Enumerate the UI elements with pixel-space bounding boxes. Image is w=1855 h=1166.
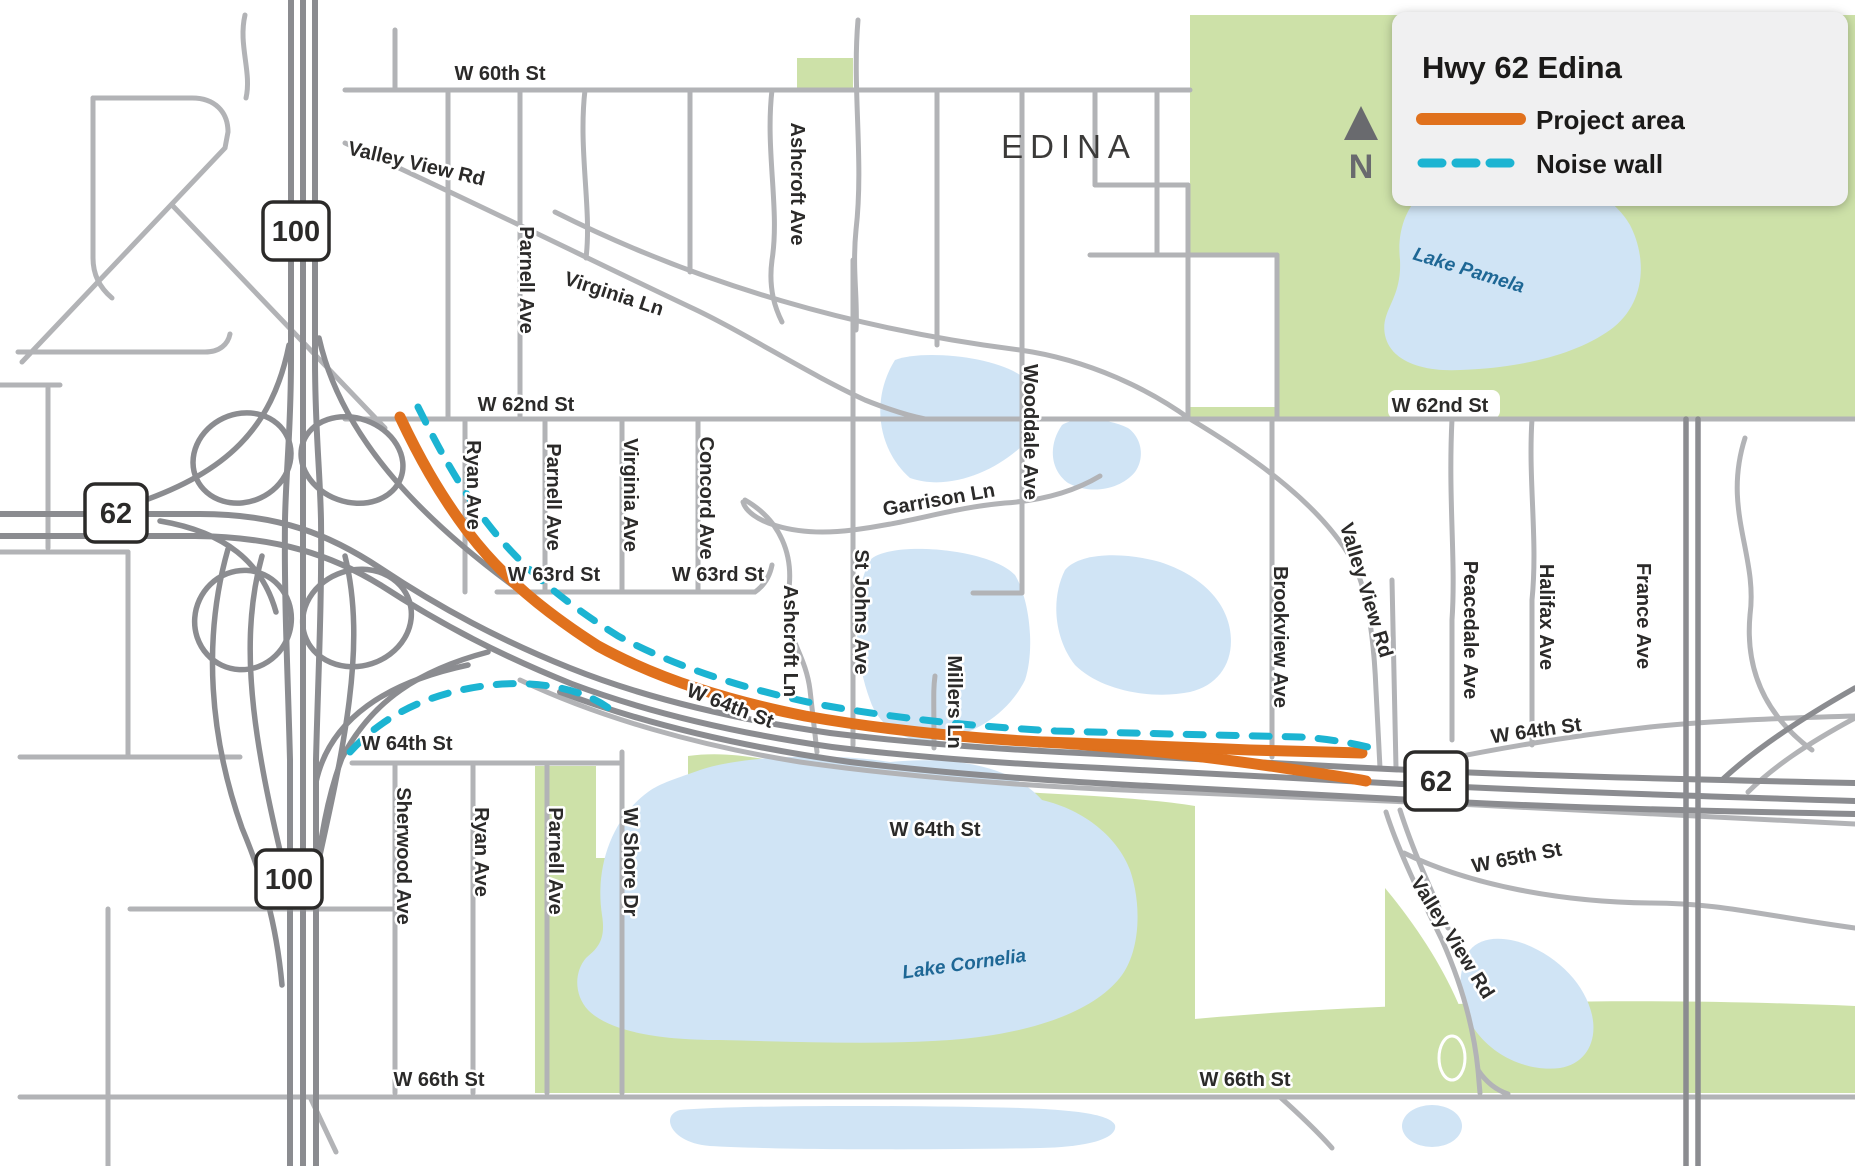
street-label-ryan-bot: Ryan Ave — [470, 807, 492, 897]
north-arrow-label: N — [1349, 148, 1374, 186]
virginia-ln-road — [583, 90, 588, 258]
local-road — [18, 334, 230, 352]
shield-100-south: 100 — [256, 850, 322, 908]
peacedale-ave-road — [1451, 419, 1453, 740]
park-patch-w60th — [797, 58, 853, 89]
street-label-w66th-l: W 66th St — [393, 1069, 484, 1091]
street-label-halifax: Halifax Ave — [1535, 564, 1557, 670]
street-label-parnell-bot: Parnell Ave — [544, 807, 566, 914]
shield-62-east-label: 62 — [1420, 766, 1452, 798]
shield-100-north: 100 — [263, 202, 329, 260]
street-label-brookview: Brookview Ave — [1269, 566, 1291, 708]
valley-view-rd-top — [345, 143, 925, 419]
street-label-wshore: W Shore Dr — [619, 808, 641, 917]
valley-view-rd-parallel — [1392, 580, 1396, 768]
street-label-w64th-green: W 64th St — [889, 819, 980, 841]
street-label-ryan-mid: Ryan Ave — [462, 440, 484, 530]
ashcroft-ave-road — [770, 90, 782, 322]
street-label-w62nd-r: W 62nd St — [1392, 395, 1489, 417]
shield-100-south-label: 100 — [265, 864, 313, 896]
street-label-virginia-ave: Virginia Ave — [619, 438, 641, 552]
street-label-france: France Ave — [1632, 563, 1654, 669]
street-label-millers: Millers Ln — [943, 655, 965, 748]
park-cutout-streets — [1190, 257, 1277, 407]
street-label-w62nd-l: W 62nd St — [478, 394, 575, 416]
pond-brookview — [1056, 555, 1231, 694]
street-label-ashcroft-ave: Ashcroft Ave — [786, 123, 808, 246]
shield-62-west-label: 62 — [100, 498, 132, 530]
street-label-parnell-mid: Parnell Ave — [542, 443, 564, 550]
map-canvas: W 60th StValley View RdParnell AveVirgin… — [0, 0, 1855, 1166]
street-label-concord: Concord Ave — [695, 437, 717, 560]
local-road — [1280, 1097, 1332, 1148]
legend-noise-wall-label: Noise wall — [1536, 149, 1663, 179]
street-label-wooddale: Wooddale Ave — [1019, 364, 1041, 500]
street-label-parnell-top: Parnell Ave — [515, 226, 537, 333]
street-label-w63rd-r: W 63rd St — [672, 564, 765, 586]
legend-project-area-label: Project area — [1536, 105, 1685, 135]
street-label-peacedale: Peacedale Ave — [1459, 561, 1481, 700]
legend: Hwy 62 Edina Project area Noise wall — [1392, 12, 1848, 206]
east-ramp-dark — [1722, 688, 1855, 780]
street-label-w60th: W 60th St — [454, 63, 545, 85]
highway-100-lane-w — [285, 0, 291, 1166]
street-label-vv-top: Valley View Rd — [346, 138, 487, 191]
legend-title: Hwy 62 Edina — [1422, 50, 1623, 85]
street-label-w66th-r: W 66th St — [1199, 1069, 1290, 1091]
east-curvy-road — [1737, 438, 1812, 750]
street-label-stjohns: St Johns Ave — [850, 549, 872, 674]
local-road — [243, 15, 248, 98]
street-label-virginia-ln: Virginia Ln — [561, 268, 666, 321]
pond-below-w66th — [670, 1106, 1115, 1149]
shield-62-west: 62 — [85, 484, 147, 542]
street-label-w63rd-l: W 63rd St — [508, 564, 601, 586]
street-label-ashcroft-ln: Ashcroft Ln — [779, 585, 801, 697]
shield-62-east: 62 — [1405, 752, 1467, 810]
halifax-ave-road — [1531, 419, 1534, 745]
highway-100-ramp — [212, 549, 282, 985]
street-label-w65th: W 65th St — [1470, 839, 1564, 878]
street-label-vv-mid: Valley View Rd — [1335, 520, 1397, 660]
wooddale-ave-road — [973, 90, 1022, 593]
street-label-sherwood: Sherwood Ave — [392, 787, 414, 924]
shield-100-north-label: 100 — [272, 216, 320, 248]
city-label: EDINA — [1001, 128, 1137, 165]
pond-below-w66th-east — [1402, 1105, 1462, 1147]
edina-project-map: W 60th StValley View RdParnell AveVirgin… — [0, 0, 1855, 1166]
street-label-w64th-l: W 64th St — [361, 733, 452, 755]
